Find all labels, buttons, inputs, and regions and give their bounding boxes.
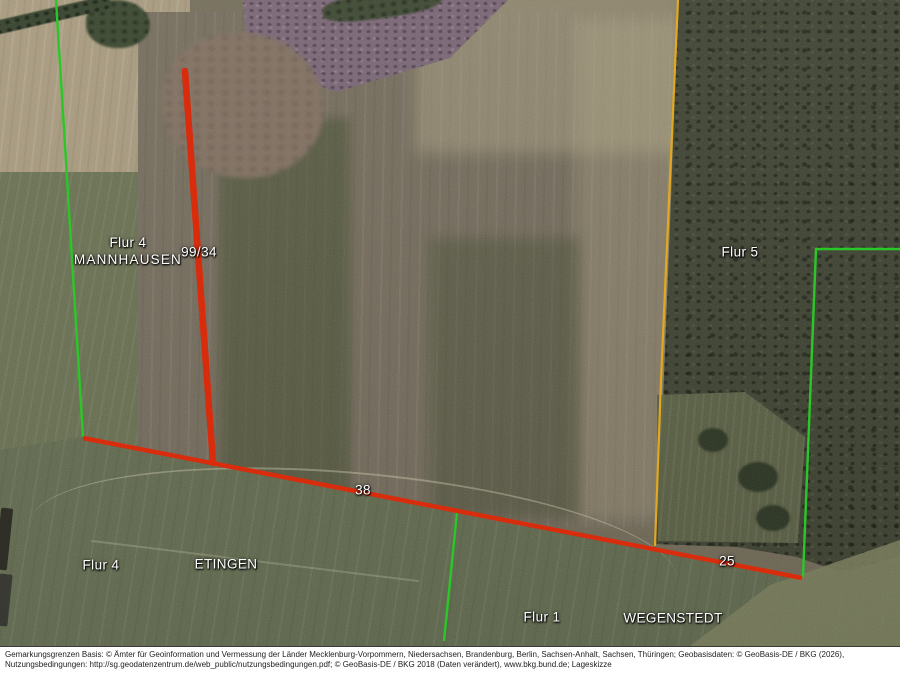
gemarkung-boundary-green-middle bbox=[444, 512, 457, 641]
attribution-footer: Gemarkungsgrenzen Basis: © Ämter für Geo… bbox=[0, 646, 900, 675]
label-gemarkung-wegenstedt: WEGENSTEDT bbox=[623, 611, 722, 628]
label-flur4-mannhausen: Flur 4 MANNHAUSEN bbox=[74, 235, 182, 269]
aerial-map-canvas: Flur 4 MANNHAUSEN 99/34 Flur 5 Flur 4 ET… bbox=[0, 0, 900, 646]
label-gemarkung-etingen: ETINGEN bbox=[195, 557, 258, 574]
parcel-boundary-red-vertical bbox=[185, 71, 213, 463]
lageskizze-screenshot: Flur 4 MANNHAUSEN 99/34 Flur 5 Flur 4 ET… bbox=[0, 0, 900, 675]
label-flur5: Flur 5 bbox=[722, 245, 759, 262]
flur-boundary-orange bbox=[655, 0, 678, 546]
label-segment-38: 38 bbox=[355, 483, 371, 500]
label-gemarkung-mannhausen: MANNHAUSEN bbox=[74, 252, 182, 269]
label-flur4-south: Flur 4 bbox=[83, 558, 120, 575]
label-segment-25: 25 bbox=[719, 554, 735, 571]
label-parcel-99-34: 99/34 bbox=[181, 245, 217, 262]
parcel-boundary-red-horizontal bbox=[83, 438, 802, 578]
boundary-lines bbox=[0, 0, 900, 646]
attribution-line-1: Gemarkungsgrenzen Basis: © Ämter für Geo… bbox=[5, 650, 895, 660]
gemarkung-boundary-green-right bbox=[803, 249, 900, 577]
label-flur4-north: Flur 4 bbox=[74, 235, 182, 252]
label-flur1: Flur 1 bbox=[524, 610, 561, 627]
gemarkung-boundary-green-left bbox=[56, 0, 83, 437]
attribution-line-2: Nutzungsbedingungen: http://sg.geodatenz… bbox=[5, 660, 895, 670]
